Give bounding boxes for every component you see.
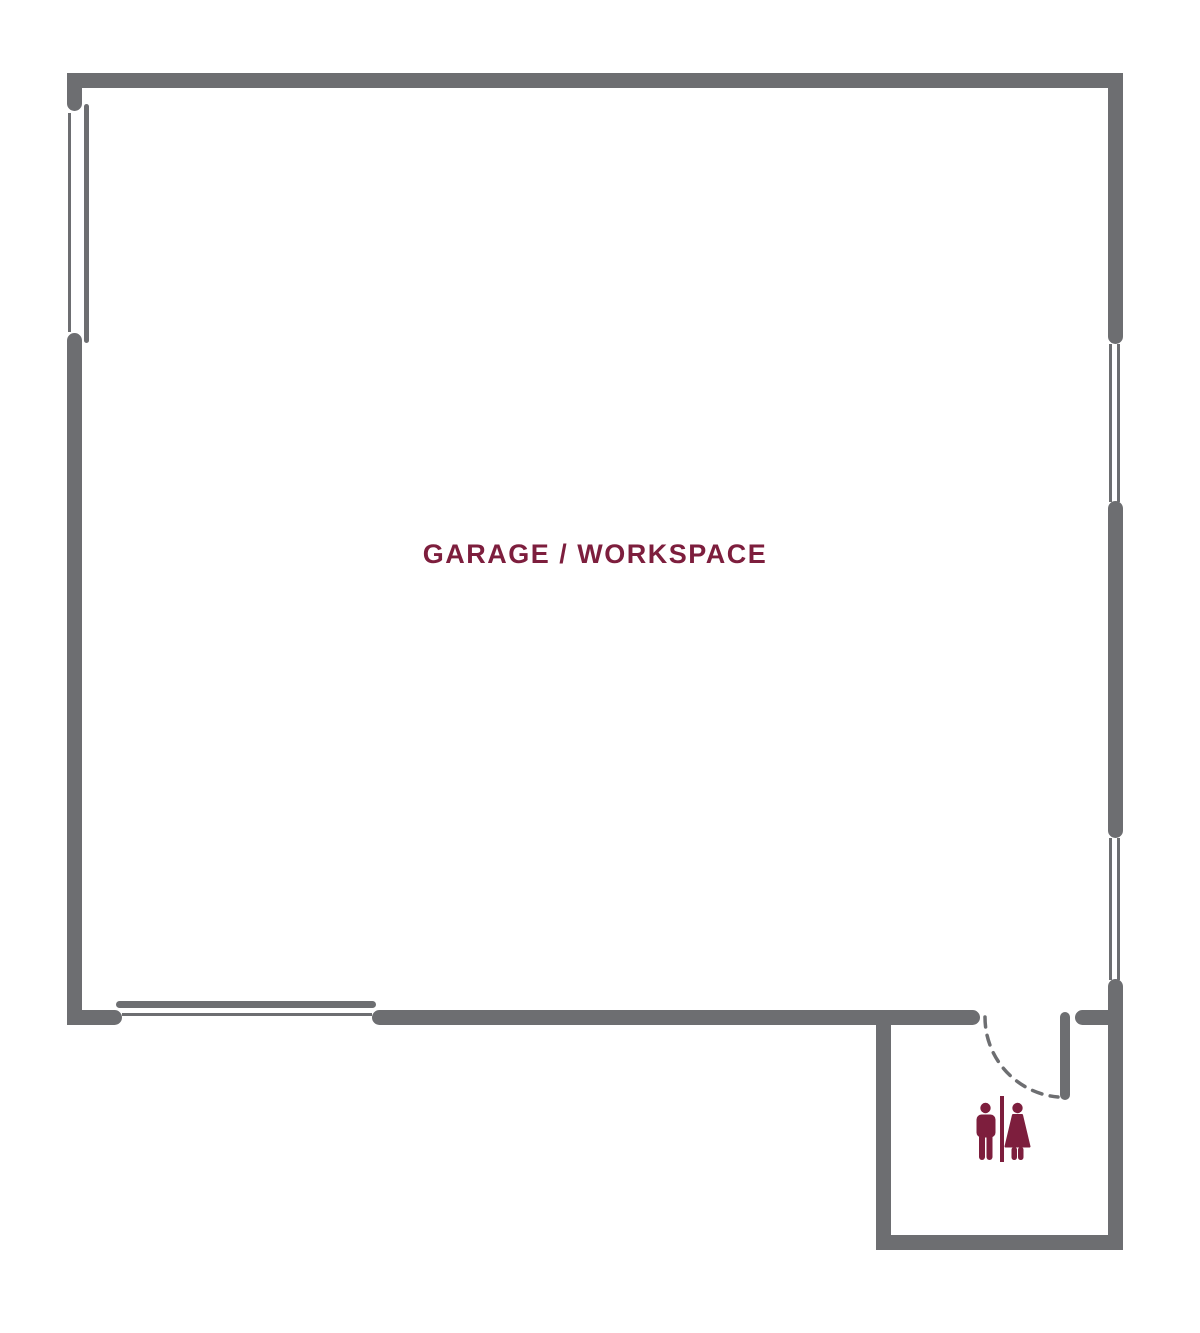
floor-plan: GARAGE / WORKSPACE (0, 0, 1200, 1333)
man-figure-icon (977, 1103, 996, 1160)
restroom-divider-line (1000, 1096, 1004, 1162)
door-swing-arc-icon (985, 1017, 1058, 1097)
plan-overlay (0, 0, 1200, 1333)
woman-figure-icon (1006, 1103, 1030, 1160)
restroom-men-women-icon (977, 1096, 1030, 1162)
